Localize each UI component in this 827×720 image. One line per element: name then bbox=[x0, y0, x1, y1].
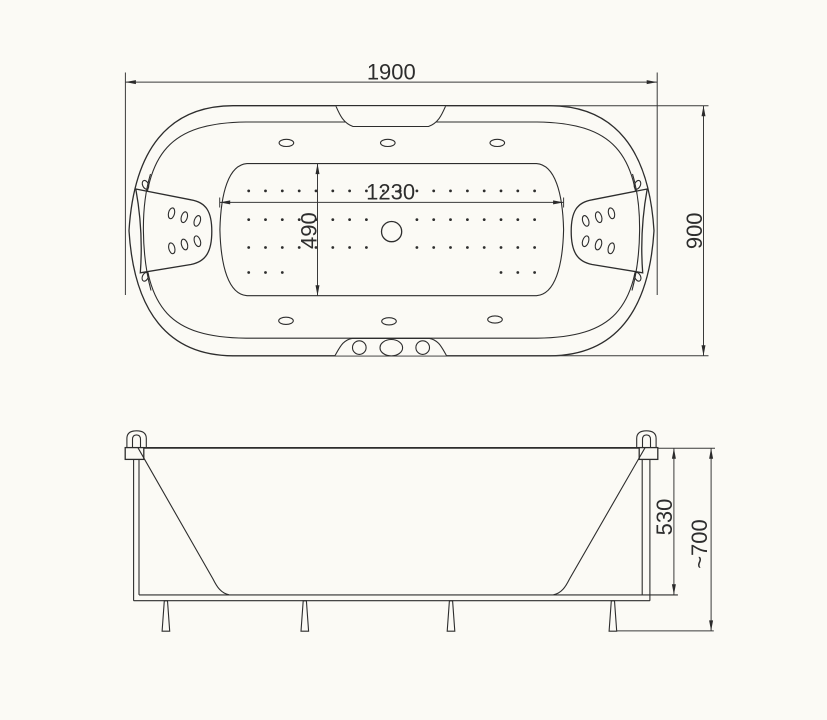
svg-text:1900: 1900 bbox=[367, 60, 416, 85]
svg-text:~700: ~700 bbox=[687, 519, 712, 569]
svg-text:1230: 1230 bbox=[366, 179, 415, 204]
svg-text:900: 900 bbox=[682, 212, 707, 249]
svg-text:490: 490 bbox=[296, 212, 321, 249]
svg-text:530: 530 bbox=[652, 499, 677, 536]
